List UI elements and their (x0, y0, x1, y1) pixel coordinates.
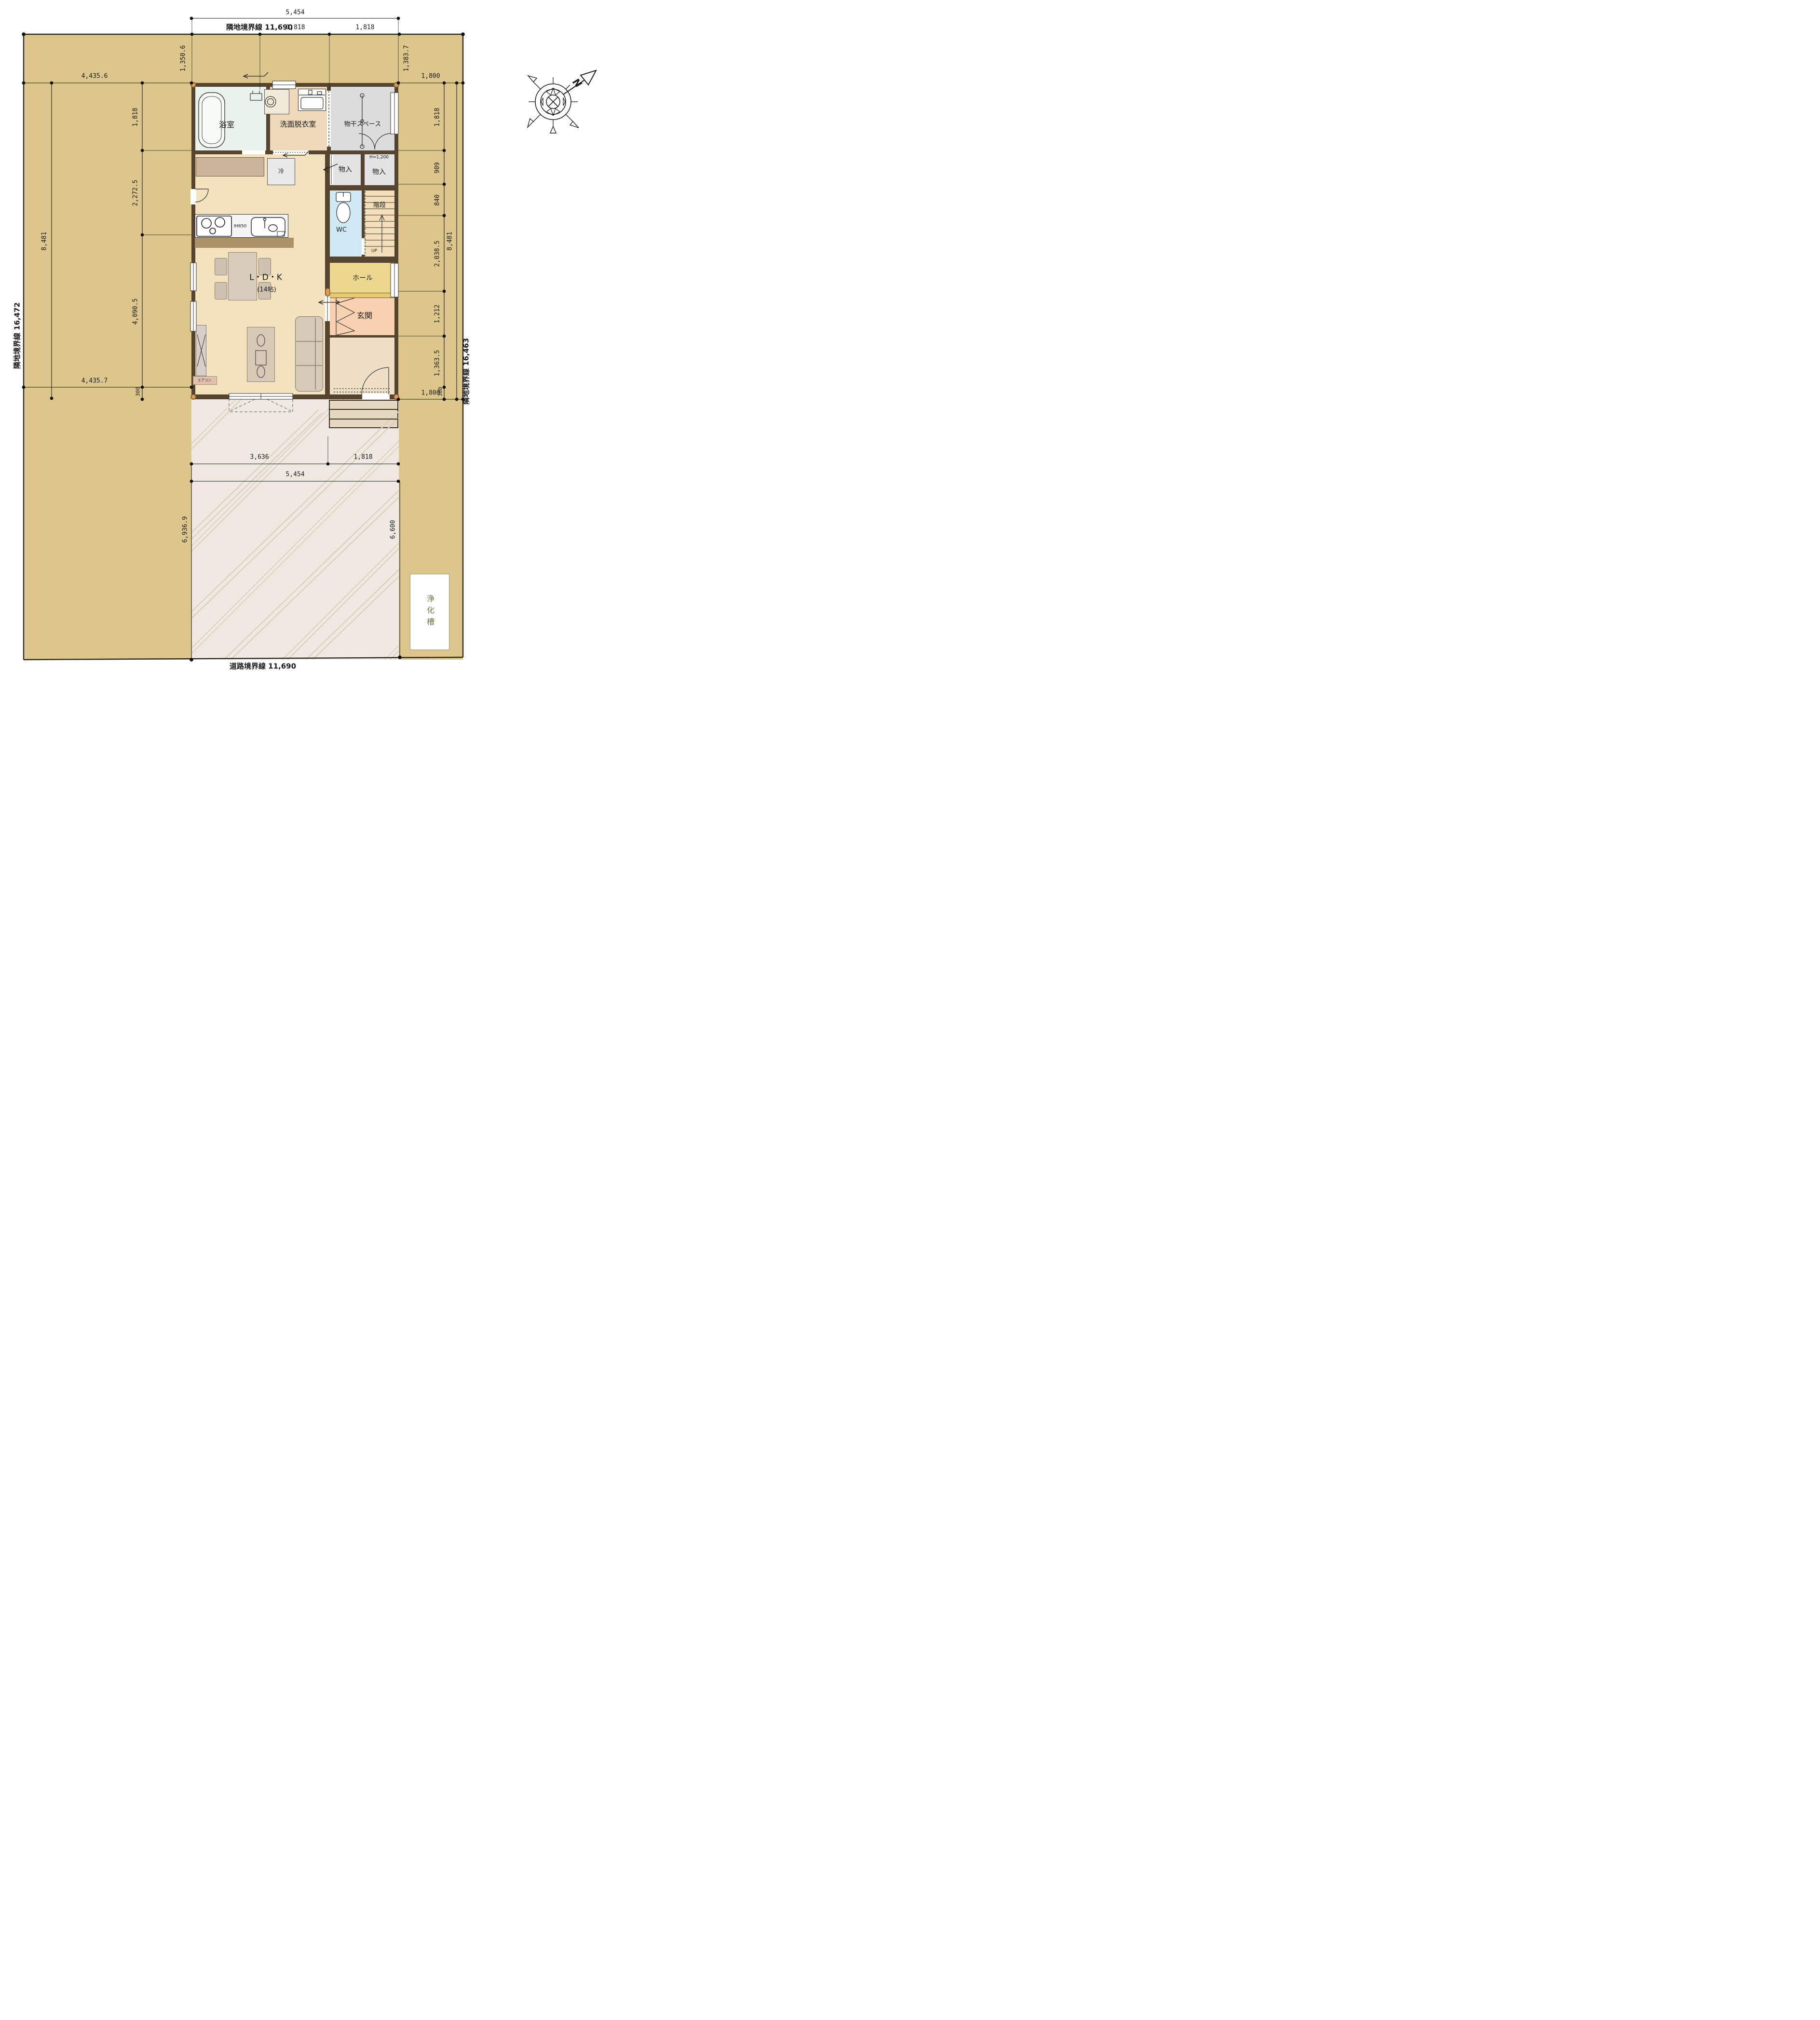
kitchen-cabinet (196, 157, 264, 176)
room-label-bathroom: 浴室 (219, 121, 234, 129)
dim-right-seg-3: 840 (435, 194, 441, 205)
room-label-stairs: 階段 (373, 203, 386, 209)
dim-right-seg-1: 1,818 (435, 108, 441, 126)
room-entry-doma (330, 338, 394, 394)
dim-right-seg-2: 909 (435, 162, 441, 173)
boundary-label-bottom: 道路境界線 11,690 (230, 663, 296, 670)
sofa (295, 316, 323, 392)
label-closet-height: H=1,200 (369, 156, 389, 160)
label-aircon: エアコン (198, 379, 211, 382)
dim-setback-top-left: 1,350.6 (180, 45, 187, 72)
boundary-label-top: 隣地境界線 11,690 (226, 24, 293, 31)
room-label-entrance: 玄関 (357, 312, 372, 320)
dim-bottom-seg-1: 3,636 (250, 454, 269, 461)
dim-bottom-seg-2: 1,818 (353, 454, 372, 461)
room-wc (330, 190, 362, 257)
room-label-ldk-size: (14帖) (257, 287, 276, 293)
dim-driveway-left: 6,936.9 (182, 516, 189, 543)
tv-board (196, 325, 206, 376)
dining-chair (215, 258, 227, 275)
dim-left-seg-2: 2,272.5 (133, 180, 139, 206)
room-label-washroom: 洗面脱衣室 (280, 121, 316, 128)
compass-icon (528, 70, 596, 133)
room-bathroom (195, 87, 266, 150)
label-ih-cooktop: IH650 (234, 225, 247, 229)
dim-setback-right-top: 1,800 (421, 73, 440, 80)
boundary-label-right: 隣地境界線 16,463 (463, 338, 470, 405)
room-drying-space (331, 87, 394, 150)
driveway (191, 399, 399, 660)
dim-top-seg-1: 1,818 (286, 25, 305, 31)
room-label-closet-2: 物入 (372, 169, 386, 176)
dim-right-seg-4: 2,038.5 (435, 241, 441, 267)
dim-setback-left-top: 4,435.6 (81, 73, 108, 80)
dim-right-seg-6: 1,363.5 (435, 350, 441, 377)
compass-north-label: N (571, 77, 584, 89)
dining-chair (215, 282, 227, 299)
room-label-drying-space: 物干スペース (344, 122, 381, 128)
septic-tank: 浄化槽 (410, 574, 449, 650)
room-label-ldk: L・D・K (249, 274, 282, 282)
dim-top-seg-2: 1,818 (355, 25, 374, 31)
room-stairs (365, 190, 394, 257)
dim-setback-top-right: 1,383.7 (404, 45, 410, 72)
boundary-label-left: 隣地境界線 16,472 (14, 302, 21, 369)
dim-left-seg-1: 1,818 (133, 108, 139, 126)
floor-plan-canvas: 浄化槽 (0, 0, 607, 673)
washing-machine (298, 89, 326, 111)
dim-bottom-overall: 5,454 (285, 472, 304, 478)
label-fridge: 冷 (278, 168, 284, 174)
dim-right-seg-5: 1,212 (435, 304, 441, 323)
dim-top-overall: 5,454 (285, 10, 304, 16)
room-label-closet-1: 物入 (339, 166, 352, 173)
vanity-counter (264, 89, 289, 114)
dim-right-overall: 8,481 (447, 231, 453, 250)
dim-left-seg-3: 4,090.5 (133, 298, 139, 325)
dim-driveway-right: 6,600 (390, 520, 396, 539)
entrance-step-band (330, 293, 394, 298)
room-label-wc: WC (336, 227, 347, 233)
kitchen-bar (195, 238, 294, 248)
coffee-table (247, 327, 275, 382)
dim-left-overall: 8,481 (41, 231, 48, 250)
label-stairs-up: UP (371, 249, 377, 254)
dim-setback-left-bottom: 4,435.7 (81, 378, 108, 384)
dim-left-seg-4: 300 (136, 387, 141, 396)
dim-setback-right-bottom: 1,800 (421, 390, 440, 396)
septic-tank-label: 浄化槽 (424, 595, 435, 629)
room-label-hall: ホール (353, 275, 373, 282)
porch-steps (329, 400, 398, 428)
